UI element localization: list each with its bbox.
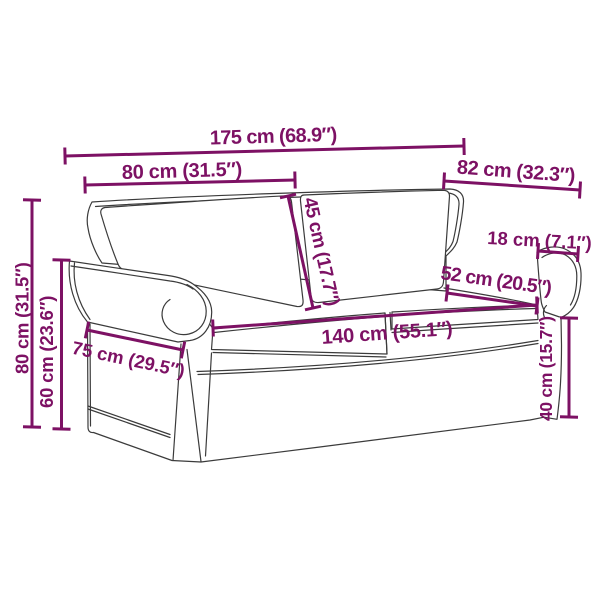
svg-text:80 cm (31.5″): 80 cm (31.5″) (12, 262, 33, 374)
svg-text:60 cm (23.6″): 60 cm (23.6″) (36, 296, 57, 408)
svg-text:40 cm (15.7″): 40 cm (15.7″) (536, 316, 556, 421)
svg-text:80 cm (31.5″): 80 cm (31.5″) (122, 159, 243, 184)
svg-text:175 cm (68.9″): 175 cm (68.9″) (210, 124, 337, 150)
